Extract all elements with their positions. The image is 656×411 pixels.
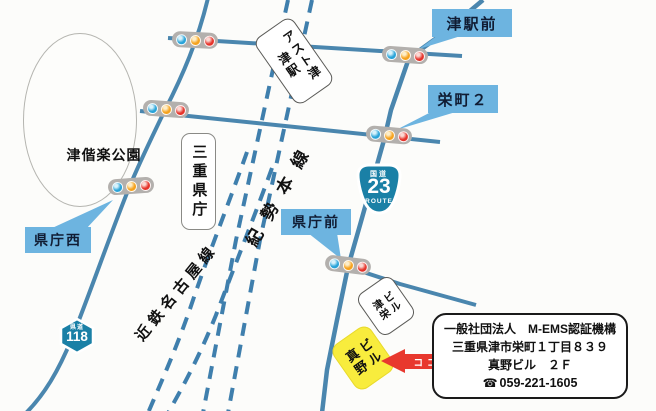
callout-kencho-nishi: 県庁西 bbox=[25, 227, 91, 253]
traffic-signal bbox=[142, 99, 189, 118]
signal-light-yellow-icon bbox=[399, 49, 411, 61]
organization-name: 一般社団法人 M-EMS認証機構 bbox=[444, 321, 616, 338]
signal-light-red-icon bbox=[413, 50, 425, 62]
phone-line: ☎059-221-1605 bbox=[483, 375, 578, 392]
signal-light-red-icon bbox=[203, 35, 215, 47]
callout-sakaemachi-2: 栄町２ bbox=[428, 85, 498, 113]
route-23-number: 23 bbox=[356, 175, 402, 199]
building-floor-line: 真野ビル ２Ｆ bbox=[488, 357, 572, 374]
signal-light-blue-icon bbox=[328, 257, 340, 269]
arrow-head-icon bbox=[381, 349, 405, 373]
signal-light-yellow-icon bbox=[383, 129, 395, 141]
signal-light-blue-icon bbox=[146, 102, 158, 114]
traffic-signal bbox=[107, 176, 154, 195]
signal-light-red-icon bbox=[397, 130, 409, 142]
callout-kencho-mae: 県庁前 bbox=[281, 209, 351, 235]
signal-light-blue-icon bbox=[175, 33, 187, 45]
prefectural-office-box: 三重県庁 bbox=[181, 133, 216, 230]
signal-light-yellow-icon bbox=[189, 34, 201, 46]
park-label: 津偕楽公園 bbox=[34, 145, 174, 165]
signal-light-blue-icon bbox=[385, 48, 397, 60]
route-23-route-label: ROUTE bbox=[356, 198, 402, 205]
phone-number: 059-221-1605 bbox=[500, 376, 578, 390]
prefectural-office-label: 三重県庁 bbox=[191, 144, 207, 220]
signal-light-red-icon bbox=[174, 104, 186, 116]
traffic-signal bbox=[172, 31, 219, 49]
address-info-box: 一般社団法人 M-EMS認証機構 三重県津市栄町１丁目８３９ 真野ビル ２Ｆ ☎… bbox=[432, 313, 628, 399]
route-23-shield-icon: 国道 23 ROUTE bbox=[356, 163, 402, 215]
route-map: 津偕楽公園 三重県庁 津駅 アスト津 紀勢本線 近鉄名古屋線 国道 23 ROU… bbox=[0, 0, 656, 411]
phone-icon: ☎ bbox=[483, 376, 498, 390]
signal-light-blue-icon bbox=[369, 128, 381, 140]
address-line: 三重県津市栄町１丁目８３９ bbox=[452, 339, 608, 356]
traffic-signal bbox=[381, 45, 428, 64]
signal-light-yellow-icon bbox=[125, 180, 137, 192]
route-118-shield-icon: 県道 118 bbox=[59, 317, 95, 355]
route-118-number: 118 bbox=[59, 329, 95, 344]
signal-light-yellow-icon bbox=[160, 103, 172, 115]
signal-light-red-icon bbox=[356, 261, 368, 273]
signal-light-yellow-icon bbox=[342, 259, 354, 271]
signal-light-red-icon bbox=[139, 179, 151, 191]
signal-light-blue-icon bbox=[111, 181, 123, 193]
callout-tsu-ekimae: 津駅前 bbox=[432, 9, 512, 37]
